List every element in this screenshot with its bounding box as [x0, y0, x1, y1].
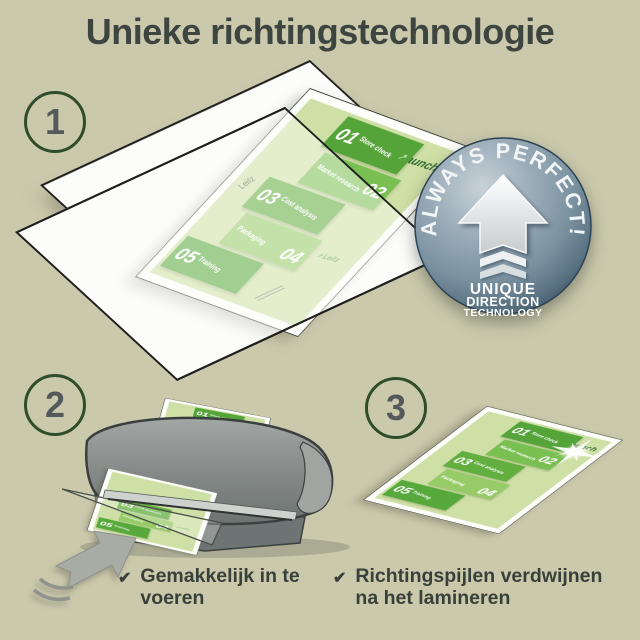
item-label: Market research — [498, 445, 538, 462]
step-number: 3 — [386, 387, 406, 429]
item-number: 01 — [508, 426, 534, 438]
step-3-number-badge: 3 — [365, 377, 427, 439]
item-label: Cost analysis — [472, 460, 506, 474]
item-number: 05 — [390, 484, 416, 496]
caption-text: Gemakkelijk in te voeren — [140, 566, 300, 610]
always-perfect-badge: ALWAYS PERFECT! UNIQUE DIRECTION TECHNOL… — [408, 131, 598, 321]
caption-text: Richtingspijlen verdwijnen na het lamine… — [355, 566, 617, 610]
item-number: 04 — [474, 486, 500, 498]
caption-arrows-disappear: ✔ Richtingspijlen verdwijnen na het lami… — [333, 566, 617, 610]
poster: Unieke richtingstechnologie 1 Leitz ↗ La… — [0, 0, 640, 640]
item-number: 03 — [450, 455, 476, 467]
item-label: Packaging — [439, 475, 467, 487]
caption-easy-feed: ✔ Gemakkelijk in te voeren — [118, 566, 300, 610]
check-icon: ✔ — [118, 568, 131, 610]
check-icon: ✔ — [333, 568, 346, 610]
item-label: Training — [411, 490, 434, 500]
badge-line-technology: TECHNOLOGY — [463, 307, 542, 319]
